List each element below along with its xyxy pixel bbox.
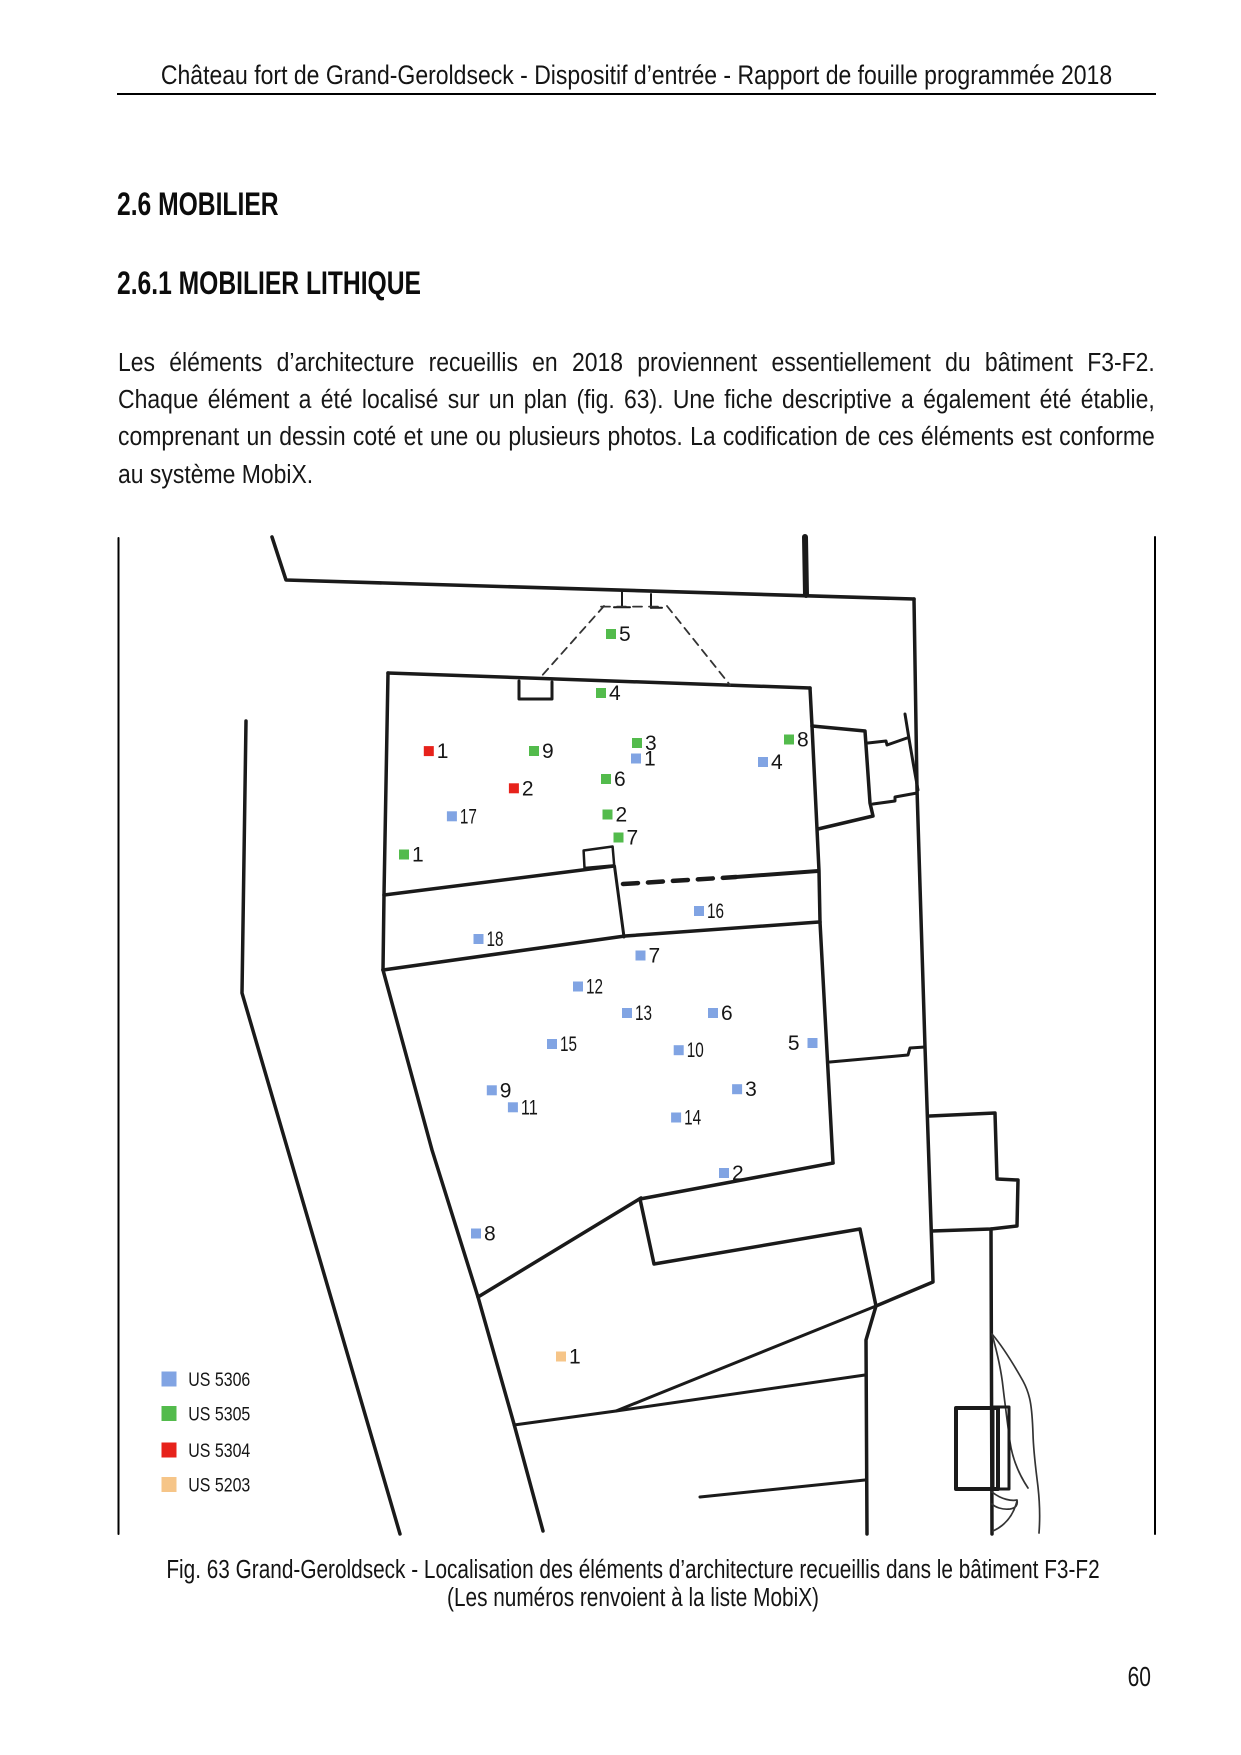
svg-text:1: 1	[412, 844, 424, 867]
svg-text:11: 11	[521, 1096, 538, 1119]
svg-text:4: 4	[771, 751, 783, 774]
svg-text:2: 2	[522, 777, 534, 800]
svg-text:17: 17	[460, 805, 477, 828]
svg-text:6: 6	[614, 768, 626, 791]
svg-text:1: 1	[569, 1346, 581, 1369]
svg-text:2: 2	[616, 804, 628, 827]
svg-text:1: 1	[437, 740, 449, 763]
svg-text:18: 18	[487, 928, 504, 951]
svg-text:5: 5	[788, 1032, 800, 1055]
svg-text:9: 9	[500, 1079, 512, 1102]
svg-text:12: 12	[586, 976, 603, 999]
svg-text:16: 16	[707, 900, 724, 923]
svg-text:15: 15	[560, 1033, 577, 1056]
svg-text:10: 10	[687, 1039, 704, 1062]
svg-text:8: 8	[484, 1223, 496, 1246]
svg-text:8: 8	[797, 729, 809, 752]
svg-text:US 5306: US 5306	[188, 1370, 250, 1391]
svg-text:14: 14	[684, 1107, 701, 1130]
svg-text:US 5304: US 5304	[188, 1441, 250, 1462]
svg-text:7: 7	[627, 827, 639, 850]
svg-text:13: 13	[635, 1002, 652, 1025]
svg-text:5: 5	[619, 623, 631, 646]
svg-text:9: 9	[542, 740, 554, 763]
svg-text:US 5305: US 5305	[188, 1405, 250, 1426]
svg-text:4: 4	[609, 682, 621, 705]
svg-text:3: 3	[745, 1078, 757, 1101]
svg-text:US 5203: US 5203	[188, 1476, 250, 1497]
svg-text:1: 1	[644, 748, 656, 771]
svg-text:2: 2	[732, 1162, 744, 1185]
svg-text:6: 6	[721, 1002, 733, 1025]
svg-text:7: 7	[649, 945, 661, 968]
